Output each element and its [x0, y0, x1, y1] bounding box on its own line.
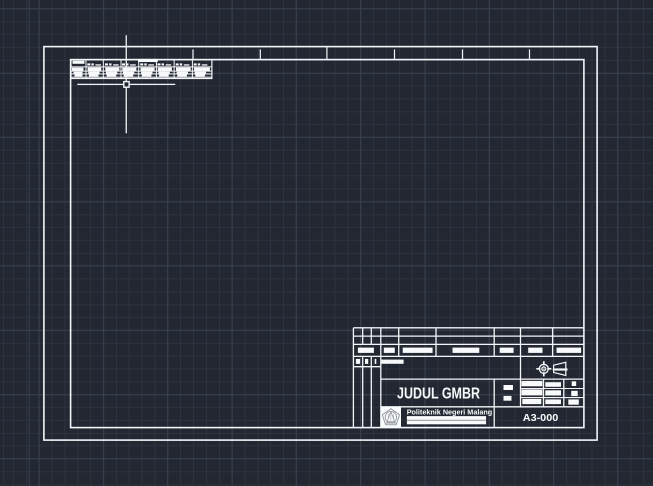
svg-text:A3-000: A3-000	[523, 413, 559, 424]
svg-text:Politeknik Negeri Malang: Politeknik Negeri Malang	[407, 407, 493, 416]
svg-text:JUDUL GMBR: JUDUL GMBR	[397, 386, 480, 403]
